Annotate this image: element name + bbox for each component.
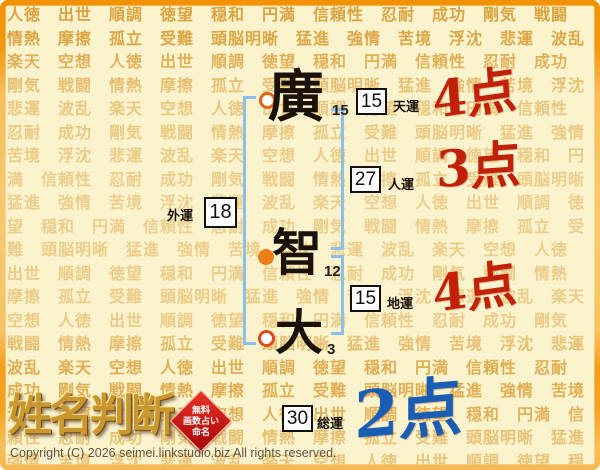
gaiun-value-box: 18 [204,197,237,228]
free-naming-stamp: 無料 画数占い 命名 [172,392,230,450]
soun-label: 総運 [317,413,343,432]
jinun-score: 3点 [436,139,521,195]
name-char-2: 智 [272,228,322,278]
name-char-1: 廣 [268,70,324,126]
chiun-value-box: 15 [350,285,381,312]
bracket-outer-left [243,96,256,345]
tenun-score: 4点 [431,64,518,126]
stamp-line-2: 画数占い [183,416,219,427]
name-char-1-strokes: 15 [332,102,349,119]
bracket-jinun [331,108,344,250]
copyright-text: Copyright (C) 2026 seimei.linkstudio.biz… [10,446,337,460]
site-logo[interactable]: 姓名判断 [8,394,172,438]
tenun-label: 天運 [393,96,419,115]
gaiun-label: 外運 [167,205,193,224]
jinun-label: 人運 [388,174,414,193]
tenun-value-box: 15 [356,88,387,115]
seimei-result-page: 人徳 出世 順調 徳望 穏和 円満 信頼性 忍耐 成功 剛気 戦闘 情熱 摩擦 … [0,0,600,470]
name-char-2-strokes: 12 [324,263,341,280]
chiun-label: 地運 [387,293,413,312]
name-char-3-strokes: 3 [327,341,335,358]
stamp-line-1: 無料 [192,405,210,416]
circle-marker-icon [258,330,275,347]
stamp-line-3: 命名 [192,427,210,438]
name-char-3: 大 [275,310,323,358]
jinun-value-box: 27 [350,166,381,193]
soun-score: 2点 [354,375,462,449]
chiun-score: 4点 [431,258,518,320]
soun-value-box: 30 [282,405,313,432]
